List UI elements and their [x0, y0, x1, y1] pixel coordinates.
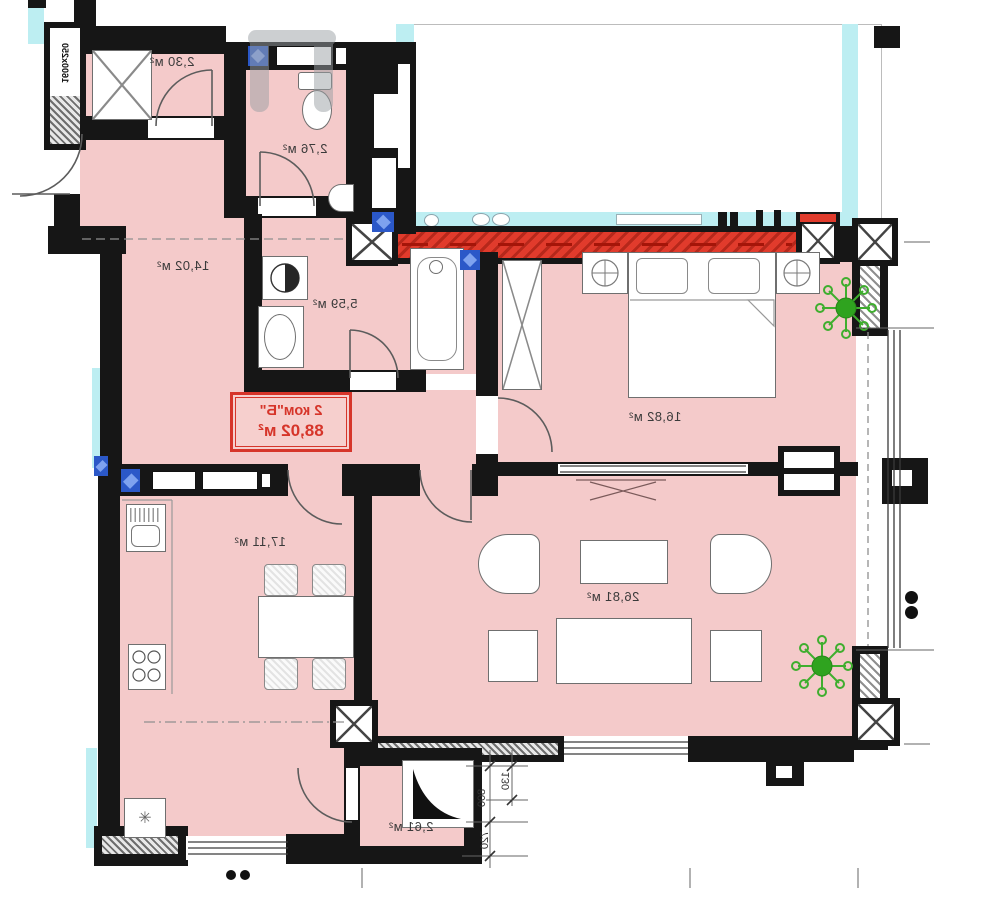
- dim-label-720: 720: [479, 820, 493, 860]
- pillow-icon: [708, 258, 760, 294]
- plumbing-riser-icon: [372, 212, 394, 232]
- loggia-symbol: [402, 760, 474, 828]
- wall-tab-notch: [776, 766, 792, 778]
- wall-bath-bottom: [244, 370, 426, 392]
- wall-hall-living: [342, 464, 420, 496]
- opening-bedroom-living: [558, 464, 748, 474]
- wall-hall-left: [100, 252, 122, 476]
- vent-dot-icon: [240, 870, 250, 880]
- adjacent-unit-outline: [396, 24, 882, 230]
- wall-kitchen-living: [354, 496, 372, 708]
- pillow-icon: [636, 258, 688, 294]
- chair-icon: [264, 658, 298, 690]
- chair-icon: [264, 564, 298, 596]
- door-opening-loggia: [346, 768, 358, 820]
- door-opening-bedroom: [476, 396, 498, 454]
- area-label-bedroom: 16,82 м²: [610, 409, 700, 424]
- chair-icon: [312, 658, 346, 690]
- plumbing-riser-icon: [121, 469, 140, 492]
- area-label-hallway: 14,02 м²: [138, 258, 228, 273]
- stove-icon: [128, 644, 166, 690]
- wall-living-bottom-right: [688, 736, 854, 762]
- wall-entry-corner: [48, 226, 126, 254]
- wall-right-stub-notch: [892, 470, 912, 486]
- column-x-icon: [336, 706, 372, 742]
- column: [852, 698, 900, 746]
- window-size-label: 1600x250: [46, 30, 84, 96]
- sink-icon: [328, 184, 354, 212]
- kitchen-sink-icon: [126, 504, 166, 552]
- wardrobe-icon: [502, 260, 542, 390]
- plumbing-riser-icon: [94, 456, 108, 476]
- area-label-kitchen: 17,11 м²: [215, 534, 305, 549]
- vent-shaft-slot: [398, 64, 410, 168]
- column: [330, 700, 378, 748]
- watermark-logo: [248, 26, 340, 114]
- kitchen-cabinet-icon: [262, 474, 270, 487]
- sink-bowl-icon: [264, 314, 296, 360]
- sofa-icon: [556, 618, 692, 684]
- coffee-table-icon: [580, 540, 668, 584]
- wall-loggia-bottom: [330, 846, 480, 864]
- wall-storage-wc: [224, 42, 246, 218]
- armchair-icon: [710, 534, 772, 594]
- area-label-loggia: 2,61 м²: [366, 819, 456, 834]
- area-label-storage: 2,30 м²: [127, 54, 217, 69]
- window-kitchen-bottom: [186, 836, 290, 860]
- column-x-icon: [858, 704, 894, 740]
- column: [852, 218, 898, 266]
- unit-tag: 2 ком"Б" 88,02 м²: [230, 392, 352, 452]
- plumbing-riser-icon: [460, 250, 480, 270]
- vent-shaft-slot: [372, 158, 396, 208]
- fridge-icon: ✳: [124, 798, 166, 838]
- wall-top-left-bit: [28, 0, 46, 8]
- plant-icon: [814, 276, 878, 340]
- adjacent-sink-icon: [492, 213, 510, 226]
- vent-dot-icon: [905, 606, 918, 619]
- nightstand-icon: [582, 252, 628, 294]
- adjacent-balcony-strip-right: [842, 24, 858, 224]
- side-table-icon: [710, 630, 762, 682]
- unit-tag-type: 2 ком"Б": [233, 402, 349, 420]
- vent-dot-icon: [226, 870, 236, 880]
- plant-icon: [790, 634, 854, 698]
- faucet-icon: [429, 260, 443, 274]
- chair-icon: [312, 564, 346, 596]
- column-x-icon: [858, 224, 892, 260]
- adjacent-counter-icon: [616, 214, 702, 225]
- adjacent-corner-wall: [874, 26, 900, 48]
- dining-table-icon: [258, 596, 354, 658]
- kitchen-cabinet-icon: [202, 471, 258, 490]
- side-table-icon: [488, 630, 538, 682]
- door-opening-bathroom: [350, 372, 396, 390]
- dim-label-800: 800: [476, 778, 490, 818]
- vent-shaft-slot: [374, 94, 398, 148]
- unit-tag-area: 88,02 м²: [233, 420, 349, 441]
- room-hallway: [80, 128, 244, 238]
- room-living: [370, 476, 856, 742]
- radiator-icon: [778, 446, 840, 496]
- kitchen-cabinet-icon: [152, 471, 196, 490]
- wall-kitchen-left: [98, 496, 120, 832]
- area-label-living: 26,81 м²: [568, 589, 658, 604]
- wall-kitchen-sw-hatch: [102, 836, 178, 854]
- door-opening-wc: [258, 198, 316, 216]
- window-living-bottom: [564, 736, 688, 762]
- armchair-icon: [478, 534, 540, 594]
- vent-dot-icon: [905, 591, 918, 604]
- adjacent-sink-icon: [472, 213, 490, 226]
- door-opening-storage: [148, 118, 214, 138]
- window-hatch-left: [50, 96, 80, 144]
- area-label-bathroom: 5,59 м²: [290, 296, 380, 311]
- area-label-wc: 2,76 м²: [260, 141, 350, 156]
- fridge-glyph: ✳: [138, 808, 151, 828]
- floor-plan: 1600x250: [0, 0, 983, 900]
- dim-label-130: 130: [500, 761, 514, 801]
- washing-machine-icon: [262, 256, 308, 300]
- window-size-text: 1600x250: [60, 43, 70, 83]
